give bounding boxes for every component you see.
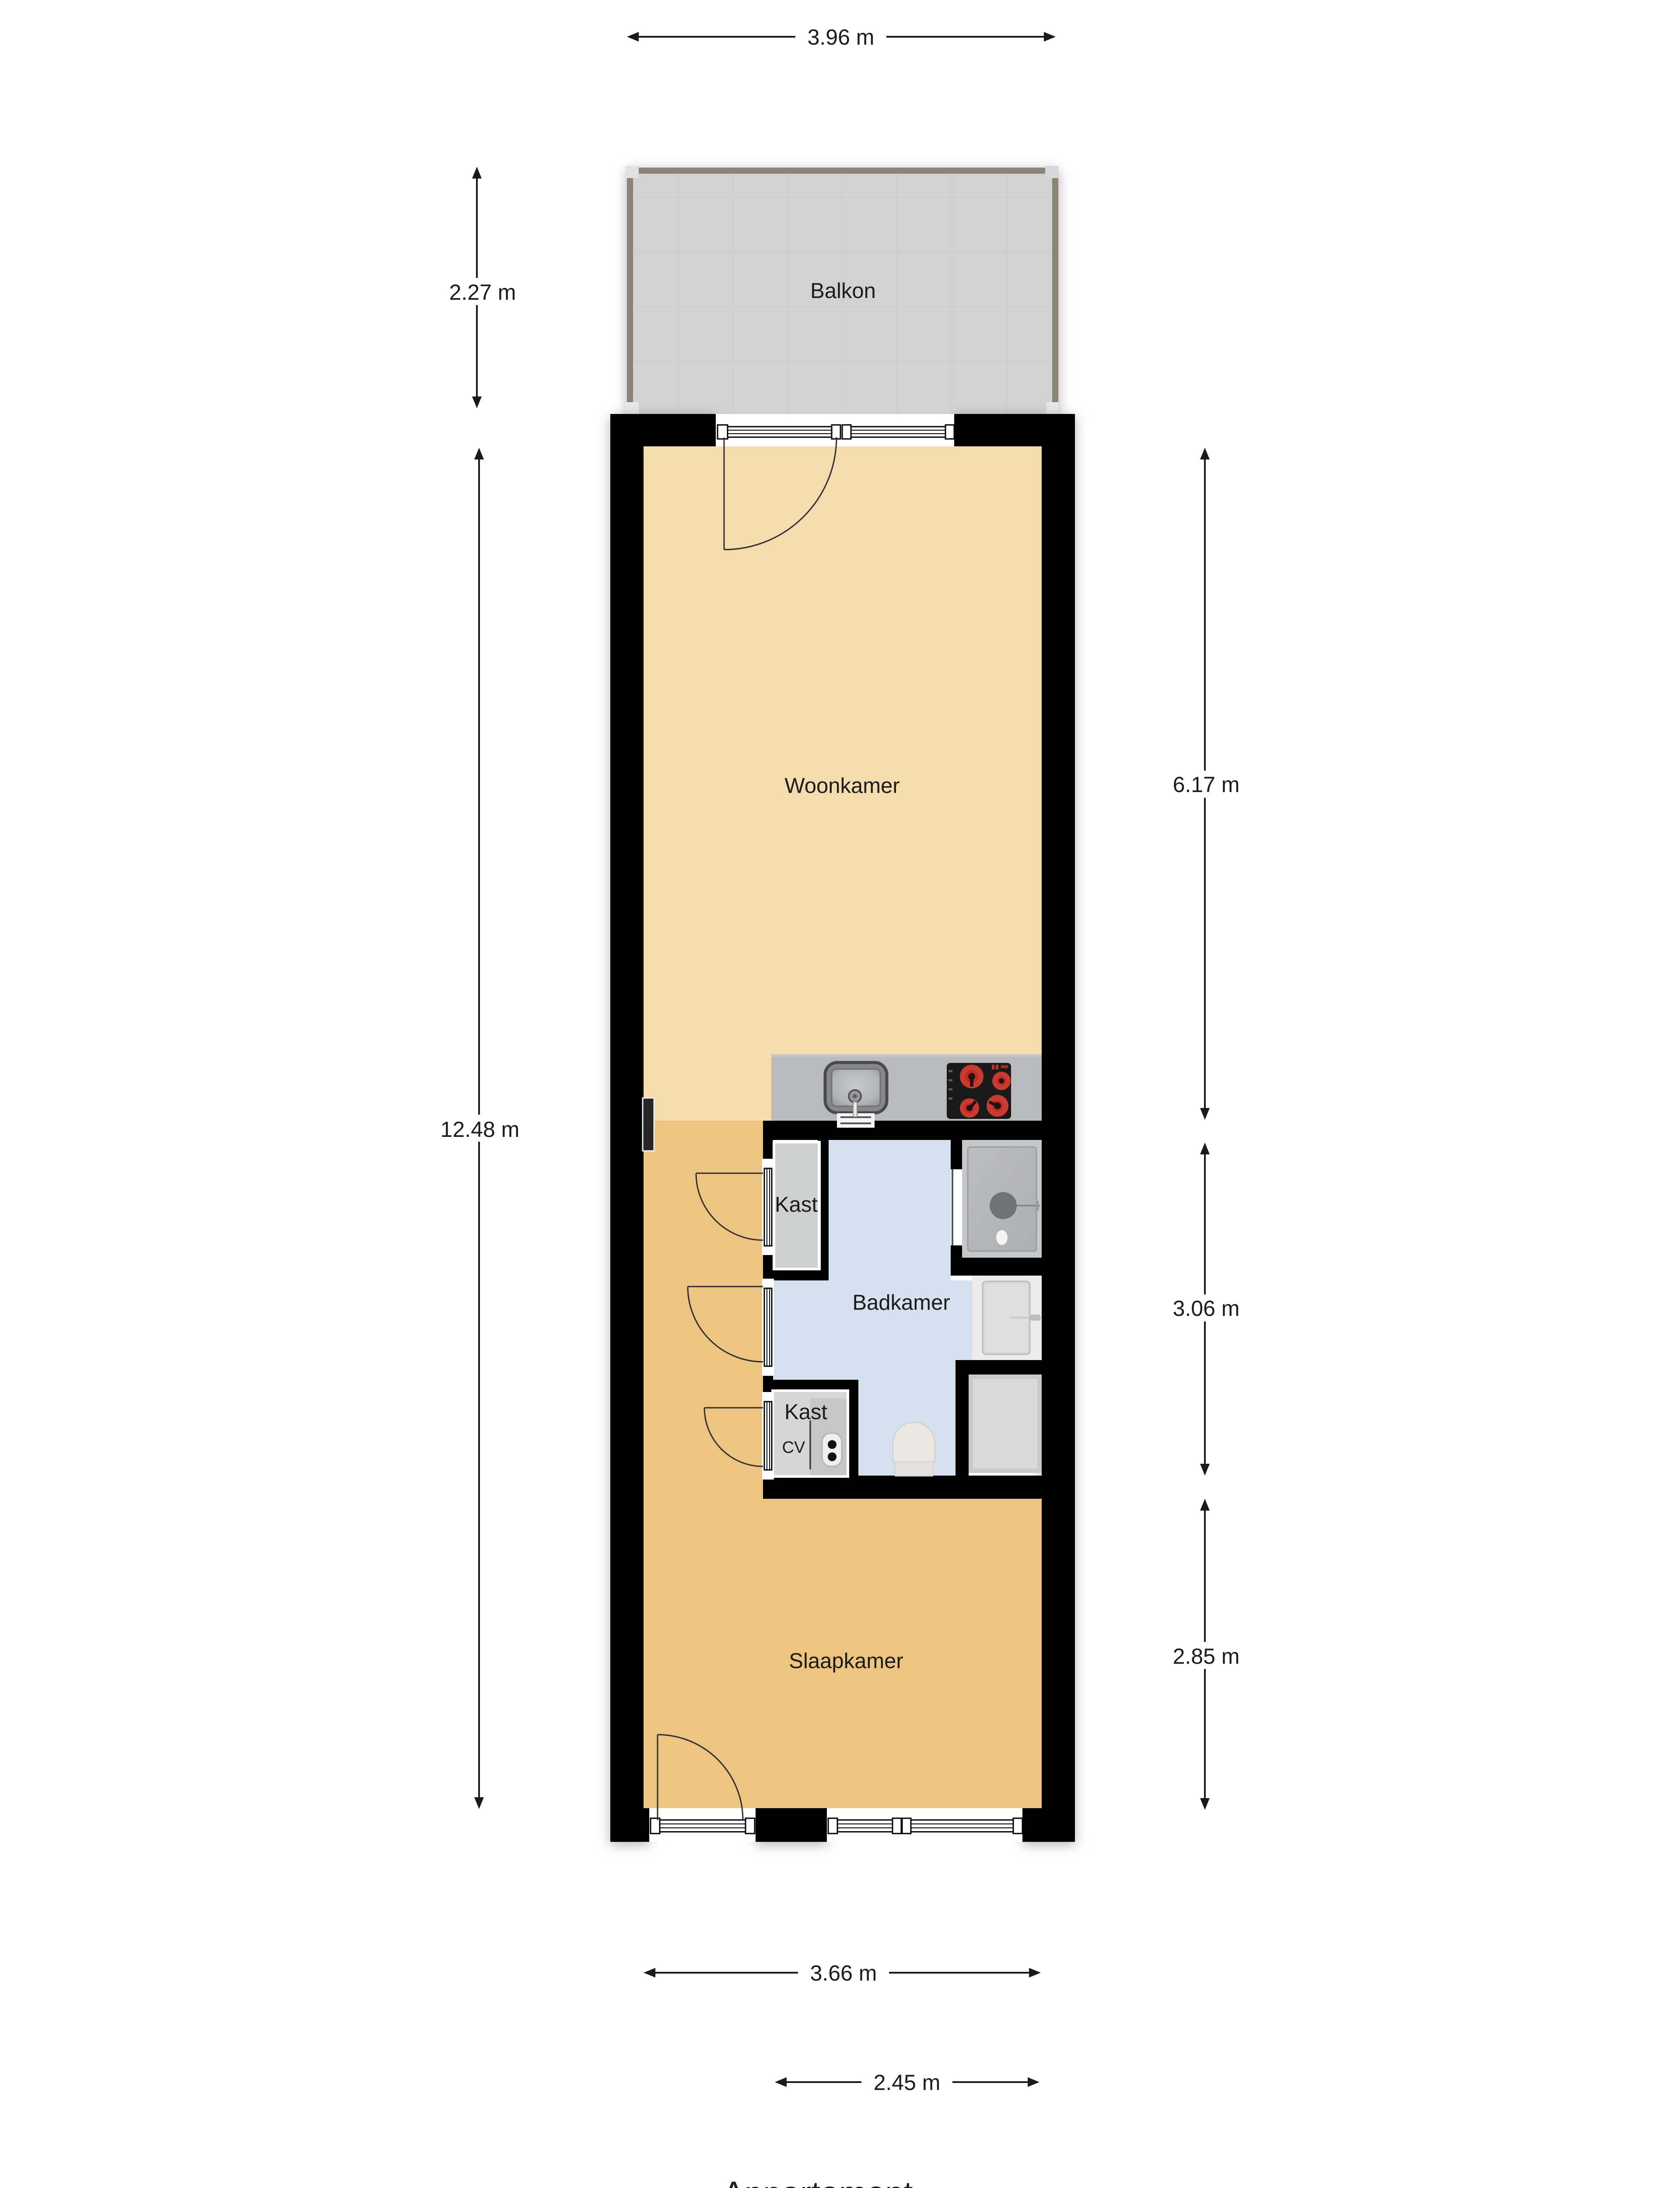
- svg-text:Kast: Kast: [784, 1400, 827, 1424]
- svg-text:12.48 m: 12.48 m: [441, 1117, 520, 1142]
- svg-text:Balkon: Balkon: [810, 279, 876, 303]
- svg-text:3.06 m: 3.06 m: [1173, 1296, 1240, 1321]
- svg-text:3.96 m: 3.96 m: [808, 25, 875, 49]
- svg-text:CV: CV: [782, 1438, 805, 1457]
- svg-text:Slaapkamer: Slaapkamer: [789, 1649, 903, 1673]
- svg-text:Badkamer: Badkamer: [852, 1291, 950, 1315]
- svg-text:2.27 m: 2.27 m: [449, 280, 516, 305]
- svg-text:2.45 m: 2.45 m: [874, 2070, 941, 2095]
- svg-text:3.66 m: 3.66 m: [810, 1961, 877, 1985]
- svg-text:6.17 m: 6.17 m: [1173, 772, 1240, 797]
- svg-text:2.85 m: 2.85 m: [1173, 1644, 1240, 1669]
- svg-text:Woonkamer: Woonkamer: [784, 774, 899, 798]
- svg-text:Kast: Kast: [775, 1193, 818, 1217]
- svg-text:Appartement: Appartement: [722, 2175, 913, 2188]
